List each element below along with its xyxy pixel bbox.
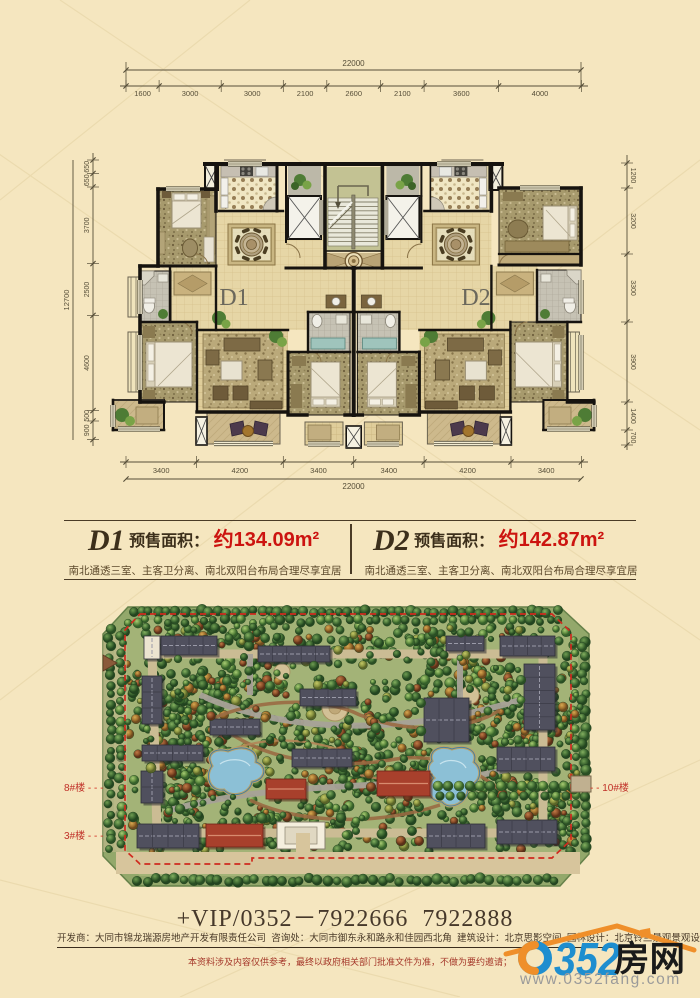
svg-text:3000: 3000	[244, 89, 261, 98]
svg-text:4000: 4000	[532, 89, 549, 98]
svg-text:D2: D2	[461, 285, 490, 311]
svg-text:D1: D1	[219, 285, 248, 311]
svg-text:www.0352fang.com: www.0352fang.com	[519, 971, 681, 988]
svg-text:3000: 3000	[182, 89, 199, 98]
svg-text:22000: 22000	[342, 59, 365, 68]
svg-text:2600: 2600	[345, 89, 362, 98]
svg-text:2500: 2500	[84, 282, 91, 298]
svg-text:3200: 3200	[629, 213, 636, 229]
svg-text:1400: 1400	[629, 408, 636, 424]
svg-text:900: 900	[84, 424, 91, 436]
svg-text:4200: 4200	[459, 466, 476, 475]
svg-text:3900: 3900	[629, 354, 636, 370]
svg-text:2100: 2100	[394, 89, 411, 98]
svg-text:3700: 3700	[84, 217, 91, 233]
svg-text:4200: 4200	[232, 466, 249, 475]
svg-text:4600: 4600	[84, 355, 91, 371]
svg-text:2100: 2100	[297, 89, 314, 98]
svg-text:1600: 1600	[134, 89, 151, 98]
svg-text:650: 650	[84, 161, 91, 173]
svg-text:650: 650	[84, 174, 91, 186]
svg-text:3400: 3400	[153, 466, 170, 475]
svg-text:3400: 3400	[381, 466, 398, 475]
svg-text:3600: 3600	[453, 89, 470, 98]
svg-text:3400: 3400	[538, 466, 555, 475]
svg-text:500: 500	[84, 410, 91, 422]
svg-text:1200: 1200	[629, 168, 636, 184]
svg-text:12700: 12700	[62, 290, 71, 311]
svg-text:700: 700	[629, 432, 636, 444]
svg-text:3300: 3300	[629, 280, 636, 296]
svg-text:22000: 22000	[342, 482, 365, 491]
svg-text:3400: 3400	[310, 466, 327, 475]
